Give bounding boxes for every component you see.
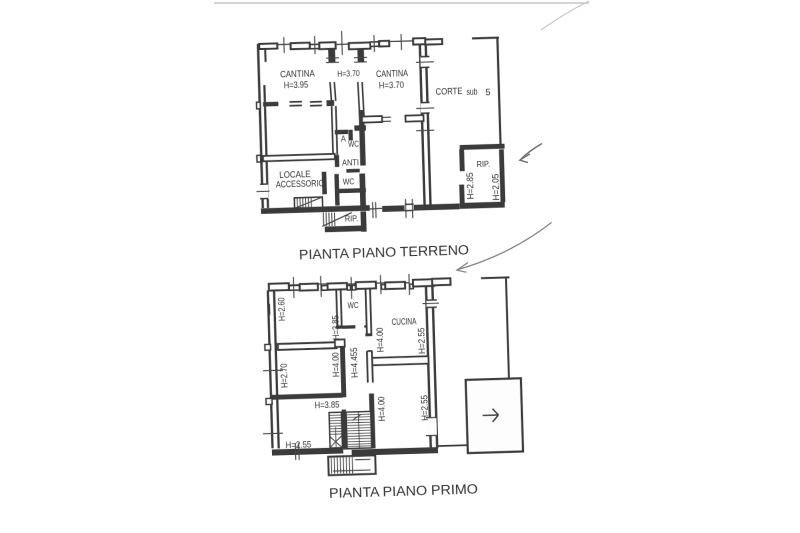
- svg-text:WC: WC: [347, 300, 358, 310]
- svg-text:ANTI: ANTI: [342, 157, 359, 167]
- svg-text:H=4.00: H=4.00: [375, 327, 386, 352]
- svg-text:A: A: [341, 133, 347, 143]
- svg-text:WC: WC: [343, 176, 355, 186]
- svg-text:H=2.55: H=2.55: [285, 439, 311, 450]
- svg-text:RIP.: RIP.: [476, 159, 490, 169]
- svg-text:5: 5: [485, 87, 490, 98]
- svg-text:H=4.455: H=4.455: [349, 347, 360, 378]
- svg-text:H=4.00: H=4.00: [376, 396, 387, 421]
- svg-text:sub: sub: [466, 87, 477, 98]
- svg-text:H=2.85: H=2.85: [465, 172, 476, 199]
- svg-text:H=2.60: H=2.60: [276, 297, 287, 321]
- svg-text:H=2.05: H=2.05: [490, 174, 501, 201]
- svg-text:WC: WC: [348, 139, 359, 149]
- svg-text:H=3.70: H=3.70: [337, 68, 360, 79]
- svg-text:CORTE: CORTE: [435, 86, 462, 98]
- svg-text:CUCINA: CUCINA: [391, 316, 416, 327]
- svg-text:H=3.85: H=3.85: [330, 315, 341, 340]
- svg-text:H=3.85: H=3.85: [315, 399, 340, 410]
- svg-text:RIP.: RIP.: [345, 213, 359, 223]
- svg-text:H=3.95: H=3.95: [284, 80, 309, 91]
- svg-text:H=3.70: H=3.70: [379, 80, 405, 91]
- svg-text:ACCESSORIO: ACCESSORIO: [276, 178, 325, 189]
- svg-text:H=4.00: H=4.00: [330, 352, 341, 377]
- svg-text:H=2.55: H=2.55: [416, 327, 427, 354]
- svg-text:H=2.55: H=2.55: [419, 395, 430, 421]
- svg-text:CANTINA: CANTINA: [376, 68, 408, 79]
- svg-text:H=2.70: H=2.70: [279, 363, 290, 388]
- svg-text:CANTINA: CANTINA: [280, 68, 315, 79]
